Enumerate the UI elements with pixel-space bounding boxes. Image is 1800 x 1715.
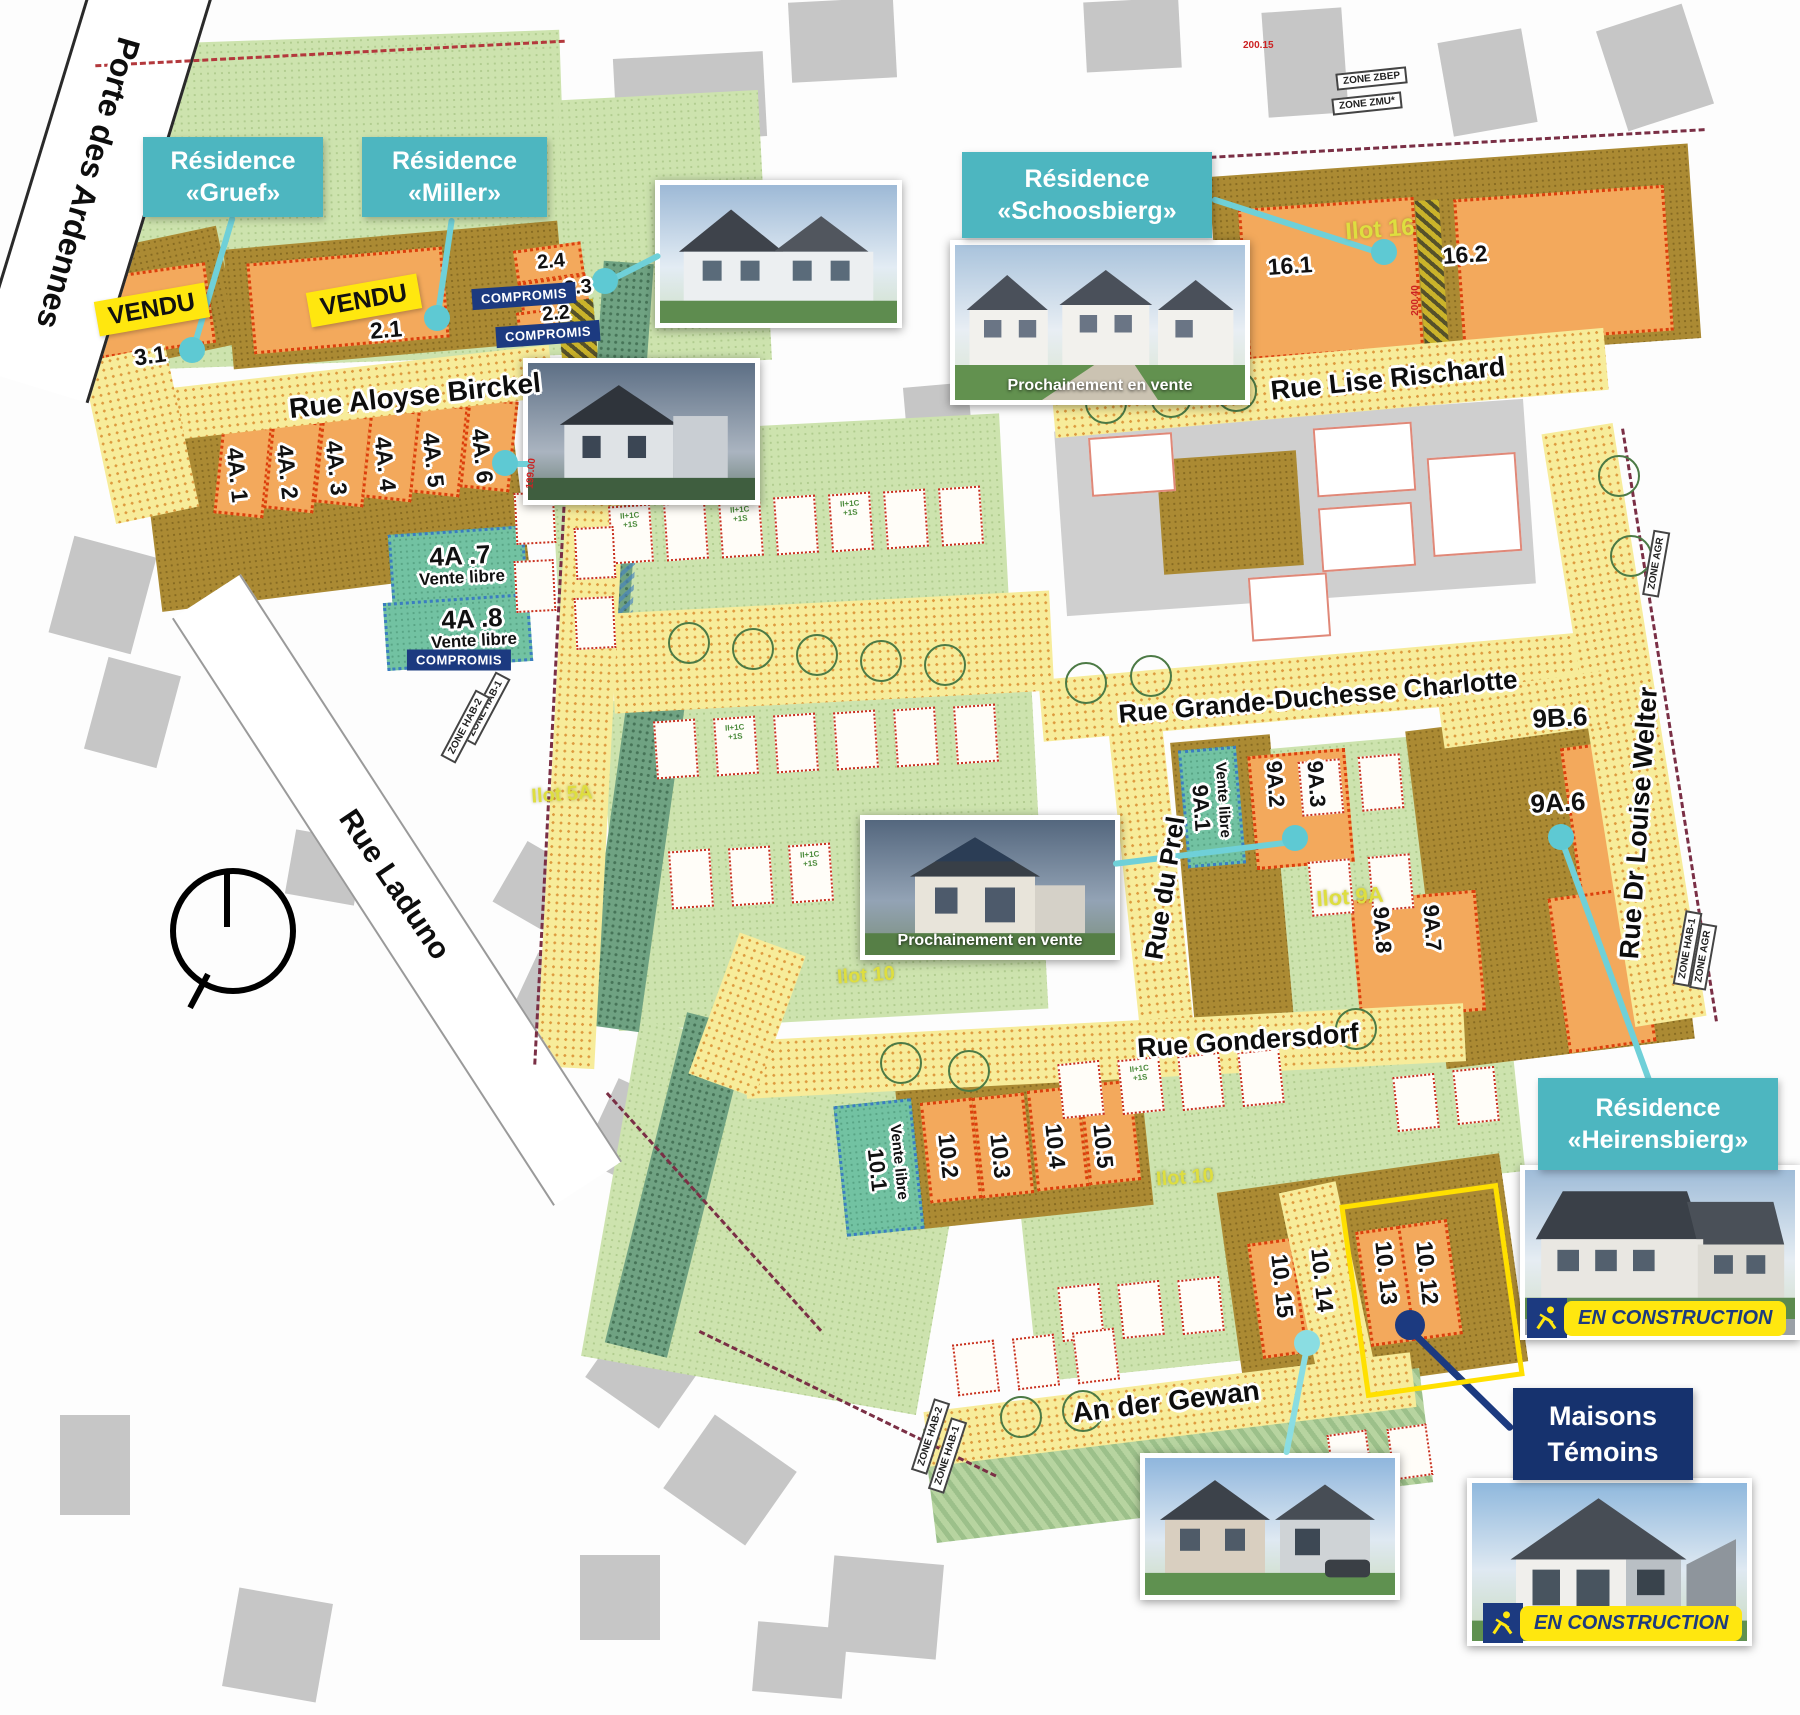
lot-label-4a3: 4A. 3 bbox=[320, 439, 353, 497]
residence-label-gruef: Résidence «Gruef» bbox=[143, 137, 323, 217]
lot-label-16-1: 16.1 bbox=[1267, 251, 1314, 281]
maisons-temoins-line1: Maisons bbox=[1513, 1398, 1693, 1434]
house-plot: II+1C+1S bbox=[788, 843, 834, 904]
house-plot bbox=[668, 849, 714, 910]
duplex-illustration bbox=[660, 185, 897, 323]
residence-heirensbierg-line2: «Heirensbierg» bbox=[1538, 1124, 1778, 1157]
elevation-mark: 200.15 bbox=[1243, 40, 1274, 51]
house-plot bbox=[1117, 1280, 1165, 1339]
maisons-temoins-line2: Témoins bbox=[1513, 1434, 1693, 1470]
lot-label-9a1: 9A.1 bbox=[1186, 784, 1215, 832]
existing-building bbox=[84, 657, 181, 768]
lot-label-3-1: 3.1 bbox=[132, 340, 167, 371]
lot-label-4a1: 4A. 1 bbox=[221, 446, 254, 504]
house-plot: II+1C+1S bbox=[718, 498, 764, 559]
house-plot bbox=[1392, 1073, 1440, 1132]
house-plot bbox=[1012, 1334, 1060, 1391]
house-plot bbox=[952, 1340, 1000, 1397]
lot-label-10-5: 10.5 bbox=[1087, 1122, 1119, 1169]
tree bbox=[1130, 655, 1172, 697]
residence-heirensbierg-line1: Résidence bbox=[1538, 1092, 1778, 1125]
callout-dot bbox=[1548, 824, 1574, 850]
residence-label-schoosbierg: Résidence «Schoosbierg» bbox=[962, 152, 1212, 238]
house-plot bbox=[663, 501, 709, 562]
residence-schoosbierg-line2: «Schoosbierg» bbox=[962, 195, 1212, 228]
tree bbox=[948, 1050, 990, 1092]
house-plot bbox=[728, 846, 774, 907]
existing-building bbox=[663, 1414, 797, 1545]
callout-dot bbox=[1282, 825, 1308, 851]
house-plot: II+1C+1S bbox=[1117, 1056, 1165, 1115]
house-plot bbox=[1452, 1066, 1500, 1125]
lot-label-4a6: 4A. 6 bbox=[466, 427, 499, 485]
construction-worker-icon bbox=[1527, 1298, 1567, 1338]
residence-gruef-line2: «Gruef» bbox=[143, 177, 323, 210]
ilot-label-9a: Ilot 9A bbox=[1316, 882, 1385, 913]
north-compass bbox=[170, 868, 296, 994]
lot-label-4a2: 4A. 2 bbox=[271, 443, 304, 501]
callout-dot bbox=[592, 268, 618, 294]
lot-label-10-4: 10.4 bbox=[1039, 1122, 1071, 1169]
tree bbox=[1598, 455, 1640, 497]
house-plot bbox=[773, 495, 819, 556]
existing-building bbox=[788, 0, 897, 83]
residence-miller-line1: Résidence bbox=[362, 145, 547, 178]
en-construction-badge-heirensbierg: EN CONSTRUCTION bbox=[1527, 1298, 1786, 1338]
callout-dot bbox=[179, 337, 205, 363]
apartment-building bbox=[1248, 572, 1331, 641]
tree bbox=[1000, 1396, 1042, 1438]
existing-building bbox=[49, 536, 157, 655]
lot-label-16-2: 16.2 bbox=[1442, 240, 1489, 270]
house-plot bbox=[938, 486, 984, 547]
construction-worker-icon bbox=[1483, 1603, 1523, 1643]
maisons-temoins-label: Maisons Témoins bbox=[1513, 1388, 1693, 1480]
lot-label-10-3: 10.3 bbox=[984, 1132, 1016, 1179]
tree bbox=[732, 628, 774, 670]
house-plot bbox=[1237, 1048, 1285, 1107]
apartment-building bbox=[1427, 452, 1523, 557]
existing-building bbox=[752, 1621, 848, 1699]
residence-label-miller: Résidence «Miller» bbox=[362, 137, 547, 217]
apartment-building bbox=[1318, 502, 1416, 572]
ilot-label-10-east: Ilot 10 bbox=[1155, 1165, 1214, 1192]
house-plot: II+1C+1S bbox=[713, 716, 759, 777]
house-plot bbox=[953, 704, 999, 765]
lot-label-4a5: 4A. 5 bbox=[417, 431, 450, 489]
callout-dot bbox=[1294, 1330, 1320, 1356]
lot-label-9a7: 9A.7 bbox=[1417, 904, 1446, 952]
dusk-house-illustration bbox=[528, 363, 755, 500]
tree bbox=[880, 1042, 922, 1084]
lot-label-2-4: 2.4 bbox=[536, 249, 566, 274]
existing-building bbox=[60, 1415, 130, 1515]
house-plot bbox=[653, 719, 699, 780]
tree bbox=[668, 622, 710, 664]
house-plot bbox=[833, 710, 879, 771]
residence-gruef-line1: Résidence bbox=[143, 145, 323, 178]
lot-label-4a4: 4A. 4 bbox=[369, 435, 402, 493]
house-plot bbox=[574, 526, 617, 580]
duplex-photo bbox=[655, 180, 902, 328]
lot-label-10-2: 10.2 bbox=[932, 1132, 964, 1179]
en-construction-badge-model-house: EN CONSTRUCTION bbox=[1483, 1603, 1742, 1643]
lot-label-9a6: 9A.6 bbox=[1530, 786, 1586, 820]
street-4a-west bbox=[82, 345, 199, 524]
lot-label-9a8: 9A.8 bbox=[1367, 906, 1396, 954]
existing-building bbox=[1437, 28, 1537, 136]
compromis-badge-4a8: COMPROMIS bbox=[407, 650, 511, 671]
lot-label-9a2: 9A.2 bbox=[1260, 760, 1289, 808]
photo-caption: Prochainement en vente bbox=[865, 932, 1115, 950]
tree bbox=[924, 644, 966, 686]
lot-label-9a3: 9A.3 bbox=[1301, 760, 1330, 808]
compass-needle bbox=[224, 870, 230, 927]
elevation-mark: 200.40 bbox=[1410, 285, 1421, 316]
existing-building bbox=[1596, 4, 1714, 132]
prel-house-photo: Prochainement en vente bbox=[860, 815, 1120, 960]
apartment-building bbox=[1088, 432, 1176, 497]
dusk-house-photo bbox=[523, 358, 760, 505]
house-plot bbox=[514, 559, 557, 613]
lot-label-2-1: 2.1 bbox=[369, 315, 403, 345]
existing-building bbox=[580, 1555, 660, 1640]
gewan-houses-photo bbox=[1140, 1453, 1400, 1600]
en-construction-label: EN CONSTRUCTION bbox=[1520, 1606, 1742, 1641]
apartment-olive bbox=[1156, 450, 1304, 574]
existing-building bbox=[222, 1588, 333, 1703]
zone-box-zbep: ZONE ZBEP bbox=[1335, 66, 1408, 90]
tree bbox=[1065, 662, 1107, 704]
house-plot bbox=[574, 596, 617, 650]
residence-miller-line2: «Miller» bbox=[362, 177, 547, 210]
lot-label-9b6: 9B.6 bbox=[1532, 701, 1588, 735]
schoosbierg-photo: Prochainement en vente bbox=[950, 240, 1250, 405]
house-plot bbox=[1177, 1276, 1225, 1335]
existing-building bbox=[1083, 0, 1182, 72]
site-plan-map: II+1C+1S II+1C+1S II+1C+1S II+1C+1S II+1… bbox=[0, 0, 1800, 1715]
house-plot bbox=[773, 713, 819, 774]
apartment-building bbox=[1313, 422, 1417, 498]
en-construction-label: EN CONSTRUCTION bbox=[1564, 1301, 1786, 1336]
ilot-label-5a: Ilot 5A bbox=[531, 781, 594, 808]
house-plot bbox=[1057, 1060, 1105, 1119]
photo-caption: Prochainement en vente bbox=[955, 377, 1245, 395]
residence-schoosbierg-line1: Résidence bbox=[962, 163, 1212, 196]
house-plot: II+1C+1S bbox=[828, 492, 874, 553]
gewan-houses-illustration bbox=[1145, 1458, 1395, 1595]
house-plot bbox=[893, 707, 939, 768]
lot-label-10-1: 10.1 bbox=[862, 1147, 892, 1192]
house-plot bbox=[883, 489, 929, 550]
ilot-label-10-west: Ilot 10 bbox=[836, 963, 895, 990]
residence-label-heirensbierg: Résidence «Heirensbierg» bbox=[1538, 1078, 1778, 1170]
house-plot bbox=[1072, 1328, 1120, 1385]
house-plot bbox=[1358, 753, 1405, 811]
ilot-label-16: Ilot 16 bbox=[1344, 214, 1415, 247]
tree bbox=[860, 640, 902, 682]
callout-dot bbox=[424, 305, 450, 331]
tree bbox=[796, 634, 838, 676]
